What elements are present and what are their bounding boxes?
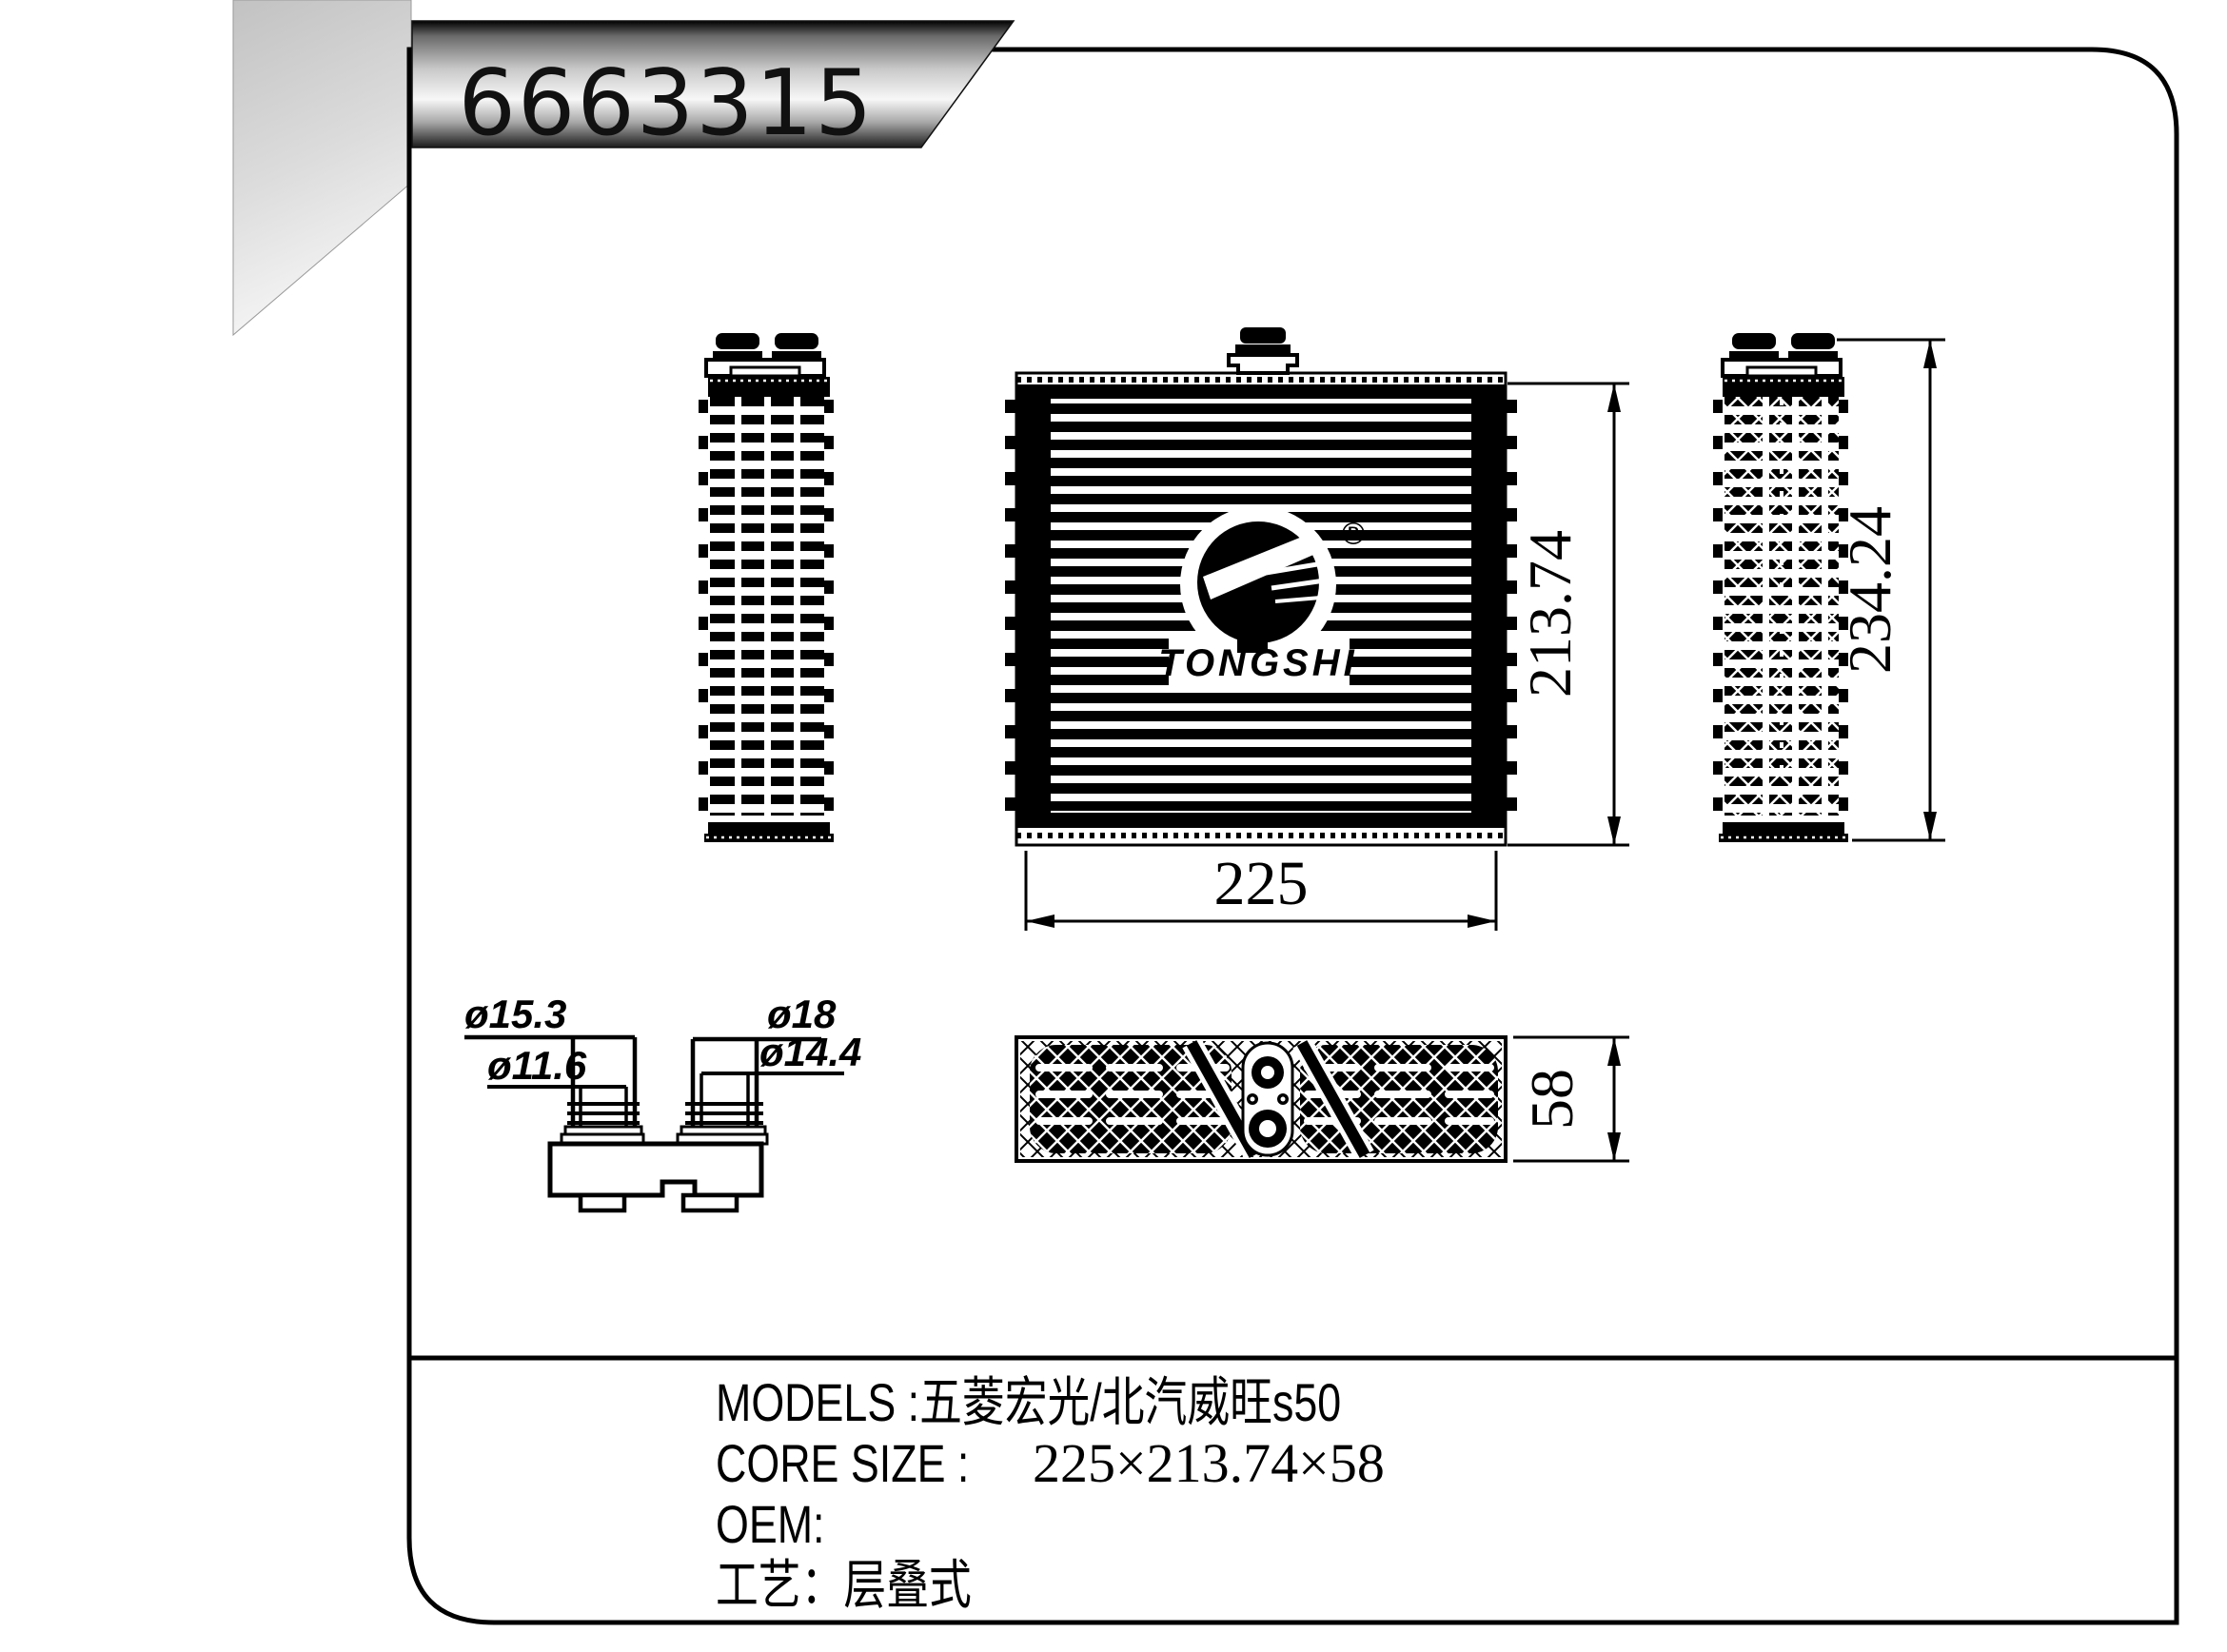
side-view-left xyxy=(699,333,834,842)
info-core-size-value: 225×213.74×58 xyxy=(1033,1432,1385,1494)
info-core-size-label: CORE SIZE : xyxy=(716,1433,969,1494)
dimension-core-height: 213.74 xyxy=(1508,383,1629,845)
inlet-nozzle xyxy=(1229,327,1297,373)
corner-accent-shape xyxy=(233,0,411,335)
depth-value: 58 xyxy=(1518,1069,1586,1130)
registered-mark: ® xyxy=(1338,516,1369,552)
core-height-value: 213.74 xyxy=(1516,530,1584,698)
fitting-dia-inner-right: ø14.4 xyxy=(759,1030,861,1074)
fitting-dia-inner-left: ø11.6 xyxy=(487,1043,587,1088)
drawing-page: 6663315 xyxy=(0,0,2227,1652)
core-width-value: 225 xyxy=(1214,849,1309,918)
front-view: ® TONGSHI xyxy=(1005,327,1517,845)
info-process: 工艺：层叠式 xyxy=(716,1555,972,1616)
fitting-dia-outer-left: ø15.3 xyxy=(464,992,566,1036)
info-models: MODELS :五菱宏光/北汽威旺s50 xyxy=(716,1372,1341,1433)
dimension-depth: 58 xyxy=(1513,1037,1629,1161)
part-number-text: 6663315 xyxy=(458,51,874,156)
dimension-total-height: 234.24 xyxy=(1836,340,1945,840)
brand-name-text: TONGSHI xyxy=(1158,642,1358,684)
part-number-banner: 6663315 xyxy=(412,21,1014,156)
total-height-value: 234.24 xyxy=(1836,506,1903,674)
dimension-core-width: 225 xyxy=(1026,849,1496,931)
info-oem: OEM: xyxy=(716,1494,825,1555)
top-view xyxy=(1016,1037,1506,1161)
side-view-right xyxy=(1713,333,1848,842)
info-block: MODELS :五菱宏光/北汽威旺s50 CORE SIZE : 225×213… xyxy=(716,1372,2048,1616)
